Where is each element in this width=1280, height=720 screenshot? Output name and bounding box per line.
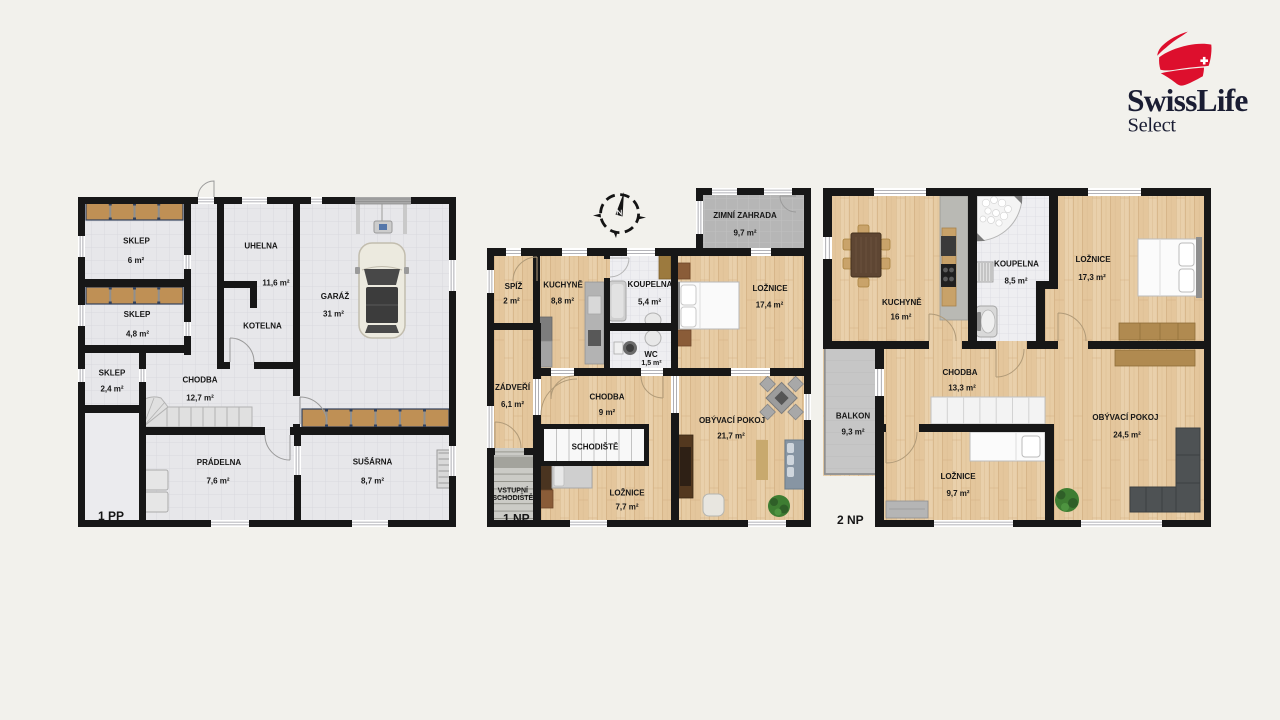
svg-text:31 m²: 31 m² — [323, 310, 344, 319]
svg-text:11,6 m²: 11,6 m² — [262, 279, 289, 288]
svg-text:21,7 m²: 21,7 m² — [717, 432, 745, 441]
svg-text:PRÁDELNA: PRÁDELNA — [197, 458, 242, 467]
svg-text:1 PP: 1 PP — [98, 509, 124, 523]
svg-text:BALKON: BALKON — [836, 411, 870, 420]
svg-text:KOTELNA: KOTELNA — [243, 322, 282, 331]
svg-text:6,1 m²: 6,1 m² — [501, 400, 524, 409]
svg-text:KUCHYNĚ: KUCHYNĚ — [882, 298, 922, 307]
svg-text:7,6 m²: 7,6 m² — [206, 477, 229, 486]
svg-text:OBÝVACÍ POKOJ: OBÝVACÍ POKOJ — [1092, 413, 1158, 422]
svg-text:5,4 m²: 5,4 m² — [638, 298, 661, 307]
svg-text:6 m²: 6 m² — [128, 256, 145, 265]
svg-text:LOŽNICE: LOŽNICE — [752, 284, 788, 293]
svg-text:ZÁDVEŘÍ: ZÁDVEŘÍ — [495, 383, 531, 392]
svg-text:SPÍŽ: SPÍŽ — [505, 282, 523, 291]
svg-text:SCHODIŠTĚ: SCHODIŠTĚ — [492, 493, 533, 502]
svg-text:CHODBA: CHODBA — [942, 368, 977, 377]
svg-text:GARÁŽ: GARÁŽ — [321, 292, 350, 301]
svg-text:9,7 m²: 9,7 m² — [733, 229, 756, 238]
svg-text:Select: Select — [1128, 115, 1177, 137]
svg-text:KUCHYNĚ: KUCHYNĚ — [543, 281, 583, 290]
svg-text:SKLEP: SKLEP — [99, 369, 126, 378]
svg-text:13,3 m²: 13,3 m² — [948, 384, 976, 393]
svg-text:24,5 m²: 24,5 m² — [1113, 431, 1141, 440]
svg-text:8,5 m²: 8,5 m² — [1004, 277, 1027, 286]
svg-text:9,3 m²: 9,3 m² — [841, 427, 864, 436]
svg-text:8,7 m²: 8,7 m² — [361, 477, 384, 486]
svg-text:SCHODIŠTĚ: SCHODIŠTĚ — [572, 443, 619, 452]
svg-text:4,8 m²: 4,8 m² — [126, 330, 149, 339]
svg-text:16 m²: 16 m² — [891, 313, 912, 322]
svg-text:9 m²: 9 m² — [599, 408, 616, 417]
svg-text:1,5 m²: 1,5 m² — [641, 360, 662, 367]
svg-text:SKLEP: SKLEP — [124, 310, 151, 319]
svg-text:17,4 m²: 17,4 m² — [756, 301, 784, 310]
svg-text:SKLEP: SKLEP — [123, 237, 150, 246]
svg-text:LOŽNICE: LOŽNICE — [1075, 255, 1111, 264]
svg-text:2,4 m²: 2,4 m² — [100, 385, 123, 394]
svg-text:ZIMNÍ ZAHRADA: ZIMNÍ ZAHRADA — [713, 211, 777, 220]
svg-text:LOŽNICE: LOŽNICE — [609, 489, 645, 498]
svg-text:SUŠÁRNA: SUŠÁRNA — [353, 458, 393, 467]
svg-text:17,3 m²: 17,3 m² — [1078, 273, 1106, 282]
svg-text:SwissLife: SwissLife — [1127, 83, 1248, 118]
svg-text:8,8 m²: 8,8 m² — [551, 297, 574, 306]
svg-text:LOŽNICE: LOŽNICE — [940, 472, 976, 481]
svg-text:OBÝVACÍ POKOJ: OBÝVACÍ POKOJ — [699, 416, 765, 425]
svg-text:CHODBA: CHODBA — [589, 393, 624, 402]
svg-text:KOUPELNA: KOUPELNA — [628, 280, 673, 289]
svg-text:9,7 m²: 9,7 m² — [946, 489, 969, 498]
svg-text:CHODBA: CHODBA — [182, 376, 217, 385]
svg-text:VSTUPNÍ: VSTUPNÍ — [498, 486, 529, 495]
svg-text:1 NP: 1 NP — [503, 511, 530, 525]
svg-text:2 m²: 2 m² — [503, 297, 520, 306]
svg-text:2 NP: 2 NP — [837, 513, 864, 527]
svg-text:7,7 m²: 7,7 m² — [615, 503, 638, 512]
svg-text:WC: WC — [644, 350, 658, 359]
svg-text:UHELNA: UHELNA — [244, 242, 278, 251]
svg-text:12,7 m²: 12,7 m² — [186, 394, 214, 403]
svg-text:KOUPELNA: KOUPELNA — [994, 260, 1039, 269]
